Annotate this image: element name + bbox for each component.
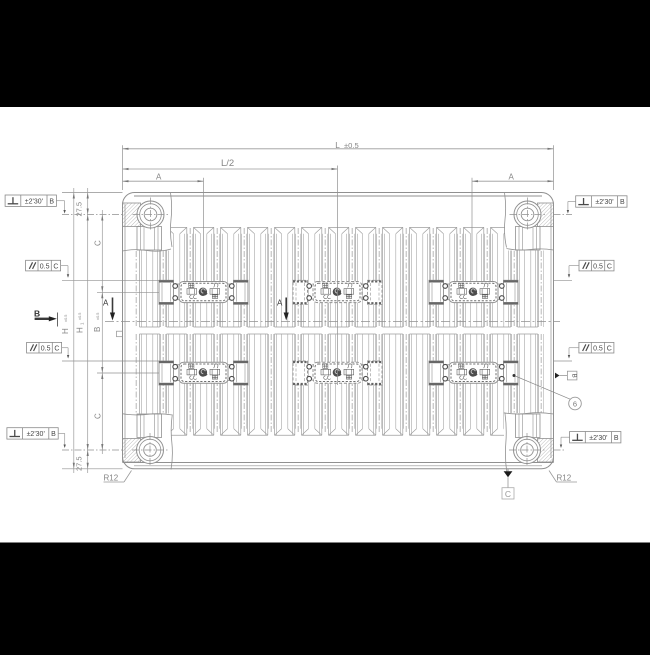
svg-text:C: C	[94, 240, 103, 246]
svg-text:R12: R12	[557, 474, 572, 483]
svg-text:0.5: 0.5	[593, 345, 603, 352]
svg-text:C: C	[94, 413, 103, 419]
svg-text:R12: R12	[104, 474, 119, 483]
svg-text:27.5: 27.5	[75, 456, 84, 471]
svg-text:H: H	[76, 327, 85, 333]
svg-text:L/2: L/2	[221, 158, 234, 169]
svg-text:C: C	[607, 345, 612, 352]
svg-text:±2'30': ±2'30'	[595, 199, 613, 206]
svg-text:B: B	[620, 199, 625, 206]
svg-text:B: B	[49, 198, 54, 205]
svg-text:B: B	[570, 374, 577, 378]
svg-text:0.5: 0.5	[41, 345, 51, 352]
svg-text:6: 6	[573, 399, 577, 408]
svg-text:C: C	[53, 263, 58, 270]
svg-text:H: H	[61, 328, 70, 334]
svg-text:±0.5: ±0.5	[96, 313, 100, 320]
svg-text:±2'30': ±2'30'	[589, 435, 607, 442]
svg-text:B: B	[93, 327, 102, 332]
svg-text:C: C	[505, 489, 511, 499]
svg-text:L: L	[335, 141, 340, 150]
svg-text:B: B	[34, 309, 40, 319]
svg-text:C: C	[54, 345, 59, 352]
svg-text:0.5: 0.5	[593, 263, 603, 270]
svg-text:A: A	[277, 299, 283, 308]
svg-text:B: B	[614, 435, 619, 442]
svg-text:A: A	[103, 299, 109, 308]
svg-text:±2'30': ±2'30'	[25, 198, 43, 205]
svg-text:±0.5: ±0.5	[78, 313, 82, 320]
svg-text:±2'30': ±2'30'	[27, 431, 45, 438]
svg-text:C: C	[607, 263, 612, 270]
svg-text:±0.5: ±0.5	[64, 315, 68, 322]
svg-text:A: A	[509, 173, 515, 182]
svg-text:0.5: 0.5	[40, 263, 50, 270]
svg-text:A: A	[156, 173, 162, 182]
svg-text:±0.5: ±0.5	[344, 141, 359, 150]
svg-text:27.5: 27.5	[75, 202, 84, 217]
svg-text:B: B	[51, 431, 56, 438]
